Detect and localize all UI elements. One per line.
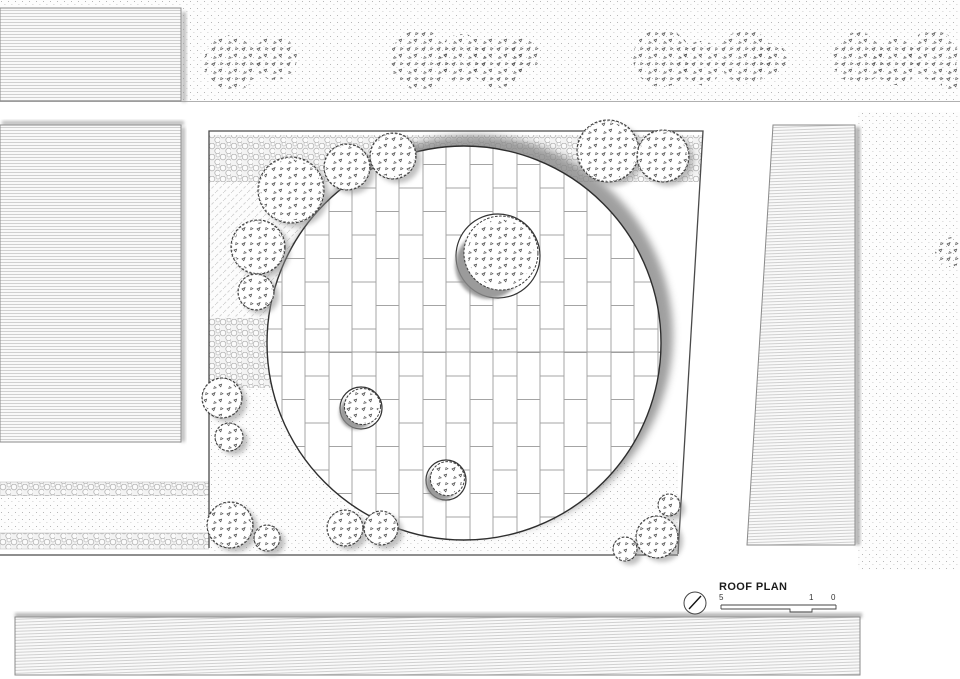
scale-label-0: 0 (831, 593, 835, 602)
building-shadow (181, 127, 185, 442)
building-shadow (855, 127, 860, 545)
stipple-path (0, 496, 209, 533)
right-ground (858, 112, 960, 570)
building-roof (0, 8, 181, 101)
scale-bar (721, 605, 836, 612)
building-left (0, 121, 185, 442)
canopy-cluster (679, 41, 723, 85)
building-right (747, 125, 860, 545)
tree-planter (455, 214, 540, 299)
building-roof (15, 617, 860, 675)
canopy-cluster (506, 38, 540, 72)
scale-label-5: 5 (719, 593, 723, 602)
building-bottom (15, 613, 862, 675)
building-shadow (182, 12, 186, 102)
pebble-path-upper (0, 482, 223, 496)
canopy-cluster (754, 43, 788, 77)
building-shadow (2, 121, 184, 125)
tree-planter (426, 460, 466, 500)
canopy-cluster (253, 36, 297, 80)
right-stipple-ground (858, 112, 960, 570)
building-top-left (0, 8, 186, 102)
roof-plan-canvas: ROOF PLAN 5 1 0 (0, 0, 960, 679)
drawing-title: ROOF PLAN (719, 581, 787, 593)
scale-label-1: 1 (809, 593, 813, 602)
building-roof (747, 125, 855, 545)
building-roof (0, 125, 181, 442)
canopy-cluster (204, 35, 260, 91)
tree-planter (340, 387, 382, 429)
roof-plan-drawing (0, 0, 960, 679)
